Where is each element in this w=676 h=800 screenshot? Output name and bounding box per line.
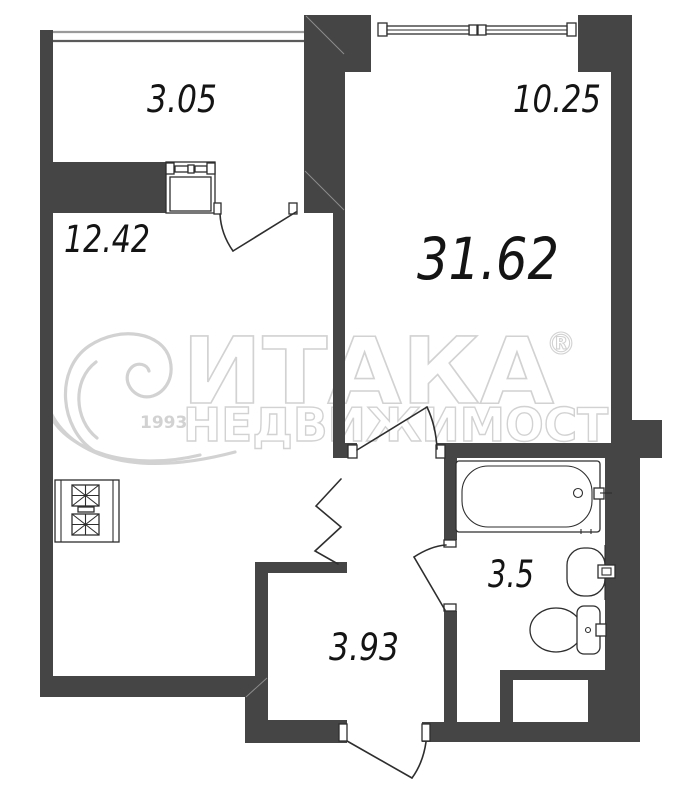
bathtub-icon xyxy=(456,461,612,534)
floor-plan-page: ИТАКА ® НЕДВИЖИМОСТЬ 1993 xyxy=(0,0,676,800)
wall-segment xyxy=(578,15,632,72)
room-area-label-hallway: 3.93 xyxy=(329,626,399,669)
door-jamb xyxy=(339,724,347,741)
wall-segment xyxy=(605,458,640,742)
room-area-label-room: 10.25 xyxy=(513,78,601,121)
wall-segment xyxy=(40,162,167,213)
wall-segment xyxy=(245,695,268,723)
wall-segment xyxy=(611,72,632,443)
wall-segment xyxy=(255,562,347,573)
balcony-window-unit xyxy=(166,162,215,213)
watermark-year: 1993 xyxy=(140,413,187,433)
wall-segment xyxy=(436,443,640,458)
door-jamb xyxy=(348,445,357,458)
watermark-registered-mark: ® xyxy=(546,327,576,362)
wall-segment xyxy=(304,15,345,213)
wall-segment xyxy=(345,15,371,72)
wall-segment xyxy=(40,30,53,697)
stove-icon xyxy=(55,480,119,542)
shaft-wall xyxy=(500,680,513,722)
wall-segment xyxy=(245,720,347,743)
total-area-label: 31.62 xyxy=(417,225,559,293)
wall-segment xyxy=(444,443,457,540)
toilet-icon xyxy=(530,606,606,654)
shaft-wall xyxy=(588,680,605,722)
wall-segment xyxy=(40,676,255,697)
door-jamb xyxy=(444,540,456,547)
door-jamb xyxy=(444,604,456,611)
door-jamb xyxy=(422,724,430,741)
shaft-wall xyxy=(500,670,605,680)
wall-segment xyxy=(444,611,457,722)
floor-plan-svg: ИТАКА ® НЕДВИЖИМОСТЬ 1993 xyxy=(0,0,676,800)
room-area-label-kitchen-living: 12.42 xyxy=(64,218,150,261)
wall-segment xyxy=(422,722,640,742)
room-area-label-balcony: 3.05 xyxy=(147,78,217,121)
door-jamb xyxy=(214,203,221,214)
wall-segment xyxy=(333,213,345,443)
room-area-label-bathroom: 3.5 xyxy=(488,553,534,596)
